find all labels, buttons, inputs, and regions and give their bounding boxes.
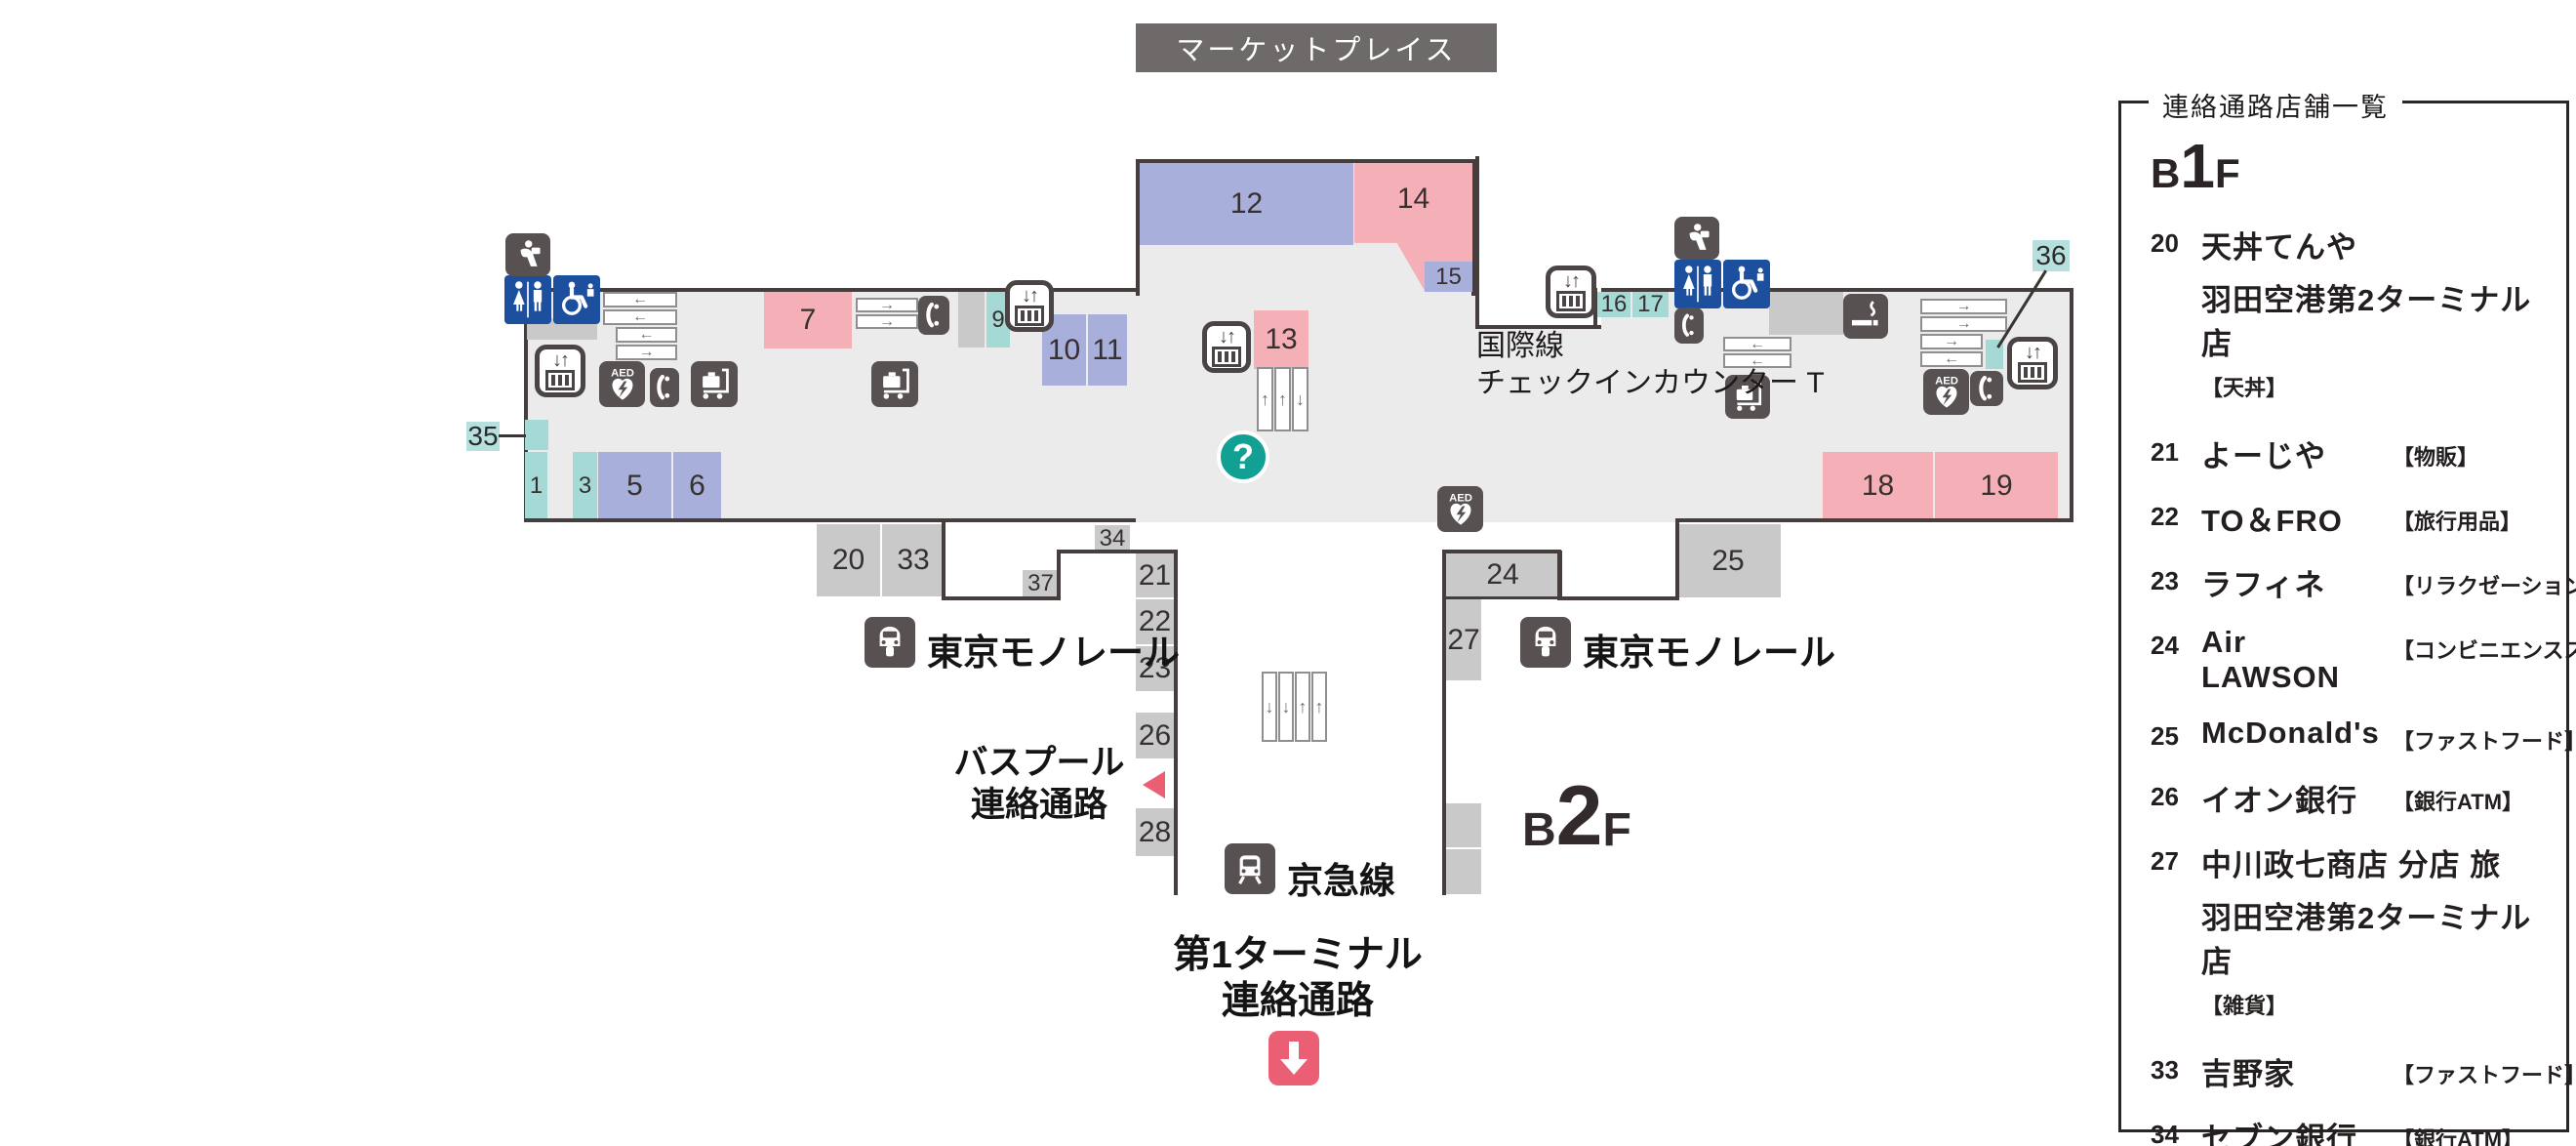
map-box-16: 16	[1597, 292, 1630, 317]
store-list-title: 連絡通路店舗一覧	[2149, 86, 2402, 124]
phone-icon	[918, 296, 949, 335]
store-list-item-26: 26イオン銀行【銀行ATM】	[2151, 776, 2541, 820]
monorail-icon	[1520, 617, 1571, 668]
map-box-11: 11	[1088, 314, 1127, 386]
monorail-icon	[865, 617, 915, 668]
map-box-3: 3	[573, 452, 597, 520]
map-box-17: 17	[1632, 292, 1669, 317]
corridor-wall	[942, 596, 1061, 600]
wall-segment	[524, 518, 1136, 522]
store-name: TO＆FRO	[2201, 496, 2383, 540]
map-box-27: 27	[1446, 599, 1481, 680]
store-list-item-23: 23ラフィネ【リラクゼーション】	[2151, 560, 2541, 604]
corridor-wall	[1442, 550, 1446, 895]
store-name: 中川政七商店 分店 旅	[2201, 840, 2541, 884]
monorail-label-left: 東京モノレール	[927, 623, 1180, 675]
escalator-arrow-icon: ←	[616, 327, 677, 343]
store-category: 【コンビニエンスストア】	[2393, 625, 2576, 695]
store-name-line2: 羽田空港第2ターミナル店	[2201, 893, 2541, 981]
map-box-28: 28	[1136, 808, 1174, 856]
map-box-19: 19	[1935, 452, 2058, 520]
phone-icon	[1970, 371, 2003, 406]
wall-segment	[1675, 518, 2073, 522]
corridor-wall	[1174, 550, 1178, 895]
store-name: セブン銀行	[2201, 1114, 2383, 1146]
smoking-room-icon	[1843, 294, 1888, 339]
escalator-arrow-icon: →	[616, 345, 677, 360]
map-box-15: 15	[1425, 262, 1472, 292]
shop-tag-35: 35	[466, 422, 500, 451]
store-category: 【ファストフード】	[2393, 1049, 2576, 1093]
corridor-wall	[1442, 550, 1561, 553]
wheelchair-icon	[553, 275, 600, 324]
corridor-wall	[942, 522, 946, 600]
map-box-blank	[958, 292, 985, 348]
terminal1-arrow-icon	[1268, 1031, 1319, 1085]
leader-line-35	[499, 434, 526, 437]
escalator-arrow-icon: ↓	[1262, 672, 1277, 742]
store-list-item-20: 20天丼てんや羽田空港第2ターミナル店【天丼】	[2151, 223, 2541, 402]
escalator-arrow-icon: ←	[603, 309, 677, 325]
store-name: ラフィネ	[2201, 560, 2383, 604]
store-number: 25	[2151, 716, 2201, 756]
map-box-33: 33	[882, 524, 945, 596]
map-box-blank	[525, 420, 548, 450]
store-name-line2: 羽田空港第2ターミナル店	[2201, 275, 2541, 363]
page-title: マーケットプレイス	[1136, 23, 1497, 72]
map-box-20: 20	[817, 524, 880, 596]
toilet-icon	[1674, 260, 1721, 308]
map-box-6: 6	[673, 452, 721, 520]
escalator-arrow-icon: ←	[1920, 351, 1983, 367]
map-box-21: 21	[1136, 553, 1174, 597]
aed-icon: AED	[1923, 369, 1969, 415]
map-box-5: 5	[598, 452, 671, 520]
aed-icon: AED	[1437, 486, 1483, 532]
map-box-12: 12	[1140, 163, 1353, 245]
map-box-blank	[1446, 849, 1481, 894]
baggage-cart-icon	[871, 361, 918, 407]
store-list-item-34: 34セブン銀行【銀行ATM】	[2151, 1114, 2541, 1146]
map-box-34: 34	[1095, 525, 1130, 552]
svg-text:AED: AED	[1935, 375, 1958, 387]
intl-checkin-label: 国際線 チェックインカウンター T	[1476, 328, 1825, 402]
terminal1-corridor-label: 第1ターミナル 連絡通路	[1166, 932, 1429, 1024]
shop-tag-36: 36	[2033, 240, 2070, 271]
phone-icon	[650, 368, 679, 407]
escalator-arrow-icon: →	[1920, 316, 2007, 332]
store-list-item-27: 27中川政七商店 分店 旅羽田空港第2ターミナル店【雑貨】	[2151, 840, 2541, 1020]
store-category: 【リラクゼーション】	[2393, 560, 2576, 604]
store-category: 【銀行ATM】	[2393, 1114, 2523, 1146]
map-box-24: 24	[1446, 553, 1559, 596]
baggage-cart-icon	[691, 361, 738, 407]
store-name: イオン銀行	[2201, 776, 2383, 820]
store-name: 天丼てんや	[2201, 223, 2541, 266]
store-number: 27	[2151, 840, 2201, 1020]
map-box-18: 18	[1823, 452, 1933, 520]
map-box-37: 37	[1023, 570, 1059, 596]
store-category: 【物販】	[2393, 431, 2478, 475]
keikyu-label: 京急線	[1287, 851, 1395, 904]
store-category: 【銀行ATM】	[2393, 776, 2523, 820]
aed-icon: AED	[599, 361, 645, 407]
drinking-fountain-icon	[1674, 217, 1719, 260]
store-name: Air LAWSON	[2201, 625, 2383, 695]
escalator-arrow-icon: →	[1920, 334, 1983, 349]
map-box-25: 25	[1675, 524, 1781, 597]
store-list-item-24: 24Air LAWSON【コンビニエンスストア】	[2151, 625, 2541, 695]
store-number: 21	[2151, 431, 2201, 475]
floor-label-b2f: B2F	[1522, 761, 1717, 854]
escalator-arrow-icon: ↑	[1257, 367, 1273, 431]
escalator-arrow-icon: ↓	[1278, 672, 1294, 742]
store-name: McDonald's	[2201, 716, 2383, 756]
elevator-icon: ↓↑	[1005, 280, 1054, 332]
buspool-label: バスプール 連絡通路	[942, 742, 1137, 826]
elevator-icon: ↓↑	[1546, 266, 1596, 318]
elevator-icon: ↓↑	[1202, 321, 1251, 373]
svg-text:AED: AED	[611, 367, 634, 379]
store-number: 34	[2151, 1114, 2201, 1146]
map-box-blank	[1446, 803, 1481, 847]
corridor-wall	[1057, 550, 1176, 553]
svg-text:AED: AED	[1449, 492, 1472, 504]
store-name: よーじや	[2201, 431, 2383, 475]
corridor-wall	[1675, 522, 1679, 600]
escalator-arrow-icon: →	[856, 314, 918, 329]
map-box-26: 26	[1136, 713, 1174, 758]
wheelchair-icon	[1723, 260, 1770, 308]
corridor-wall	[1557, 550, 1561, 600]
information-icon: ?	[1217, 430, 1269, 483]
store-list-item-33: 33吉野家【ファストフード】	[2151, 1049, 2541, 1093]
store-list-item-22: 22TO＆FRO【旅行用品】	[2151, 496, 2541, 540]
escalator-arrow-icon: ↓	[1292, 367, 1308, 431]
store-category: 【雑貨】	[2201, 989, 2541, 1020]
store-number: 22	[2151, 496, 2201, 540]
elevator-icon: ↓↑	[535, 345, 585, 397]
corridor-wall	[1557, 596, 1678, 600]
store-list-panel: 連絡通路店舗一覧 B1F 20天丼てんや羽田空港第2ターミナル店【天丼】21よー…	[2118, 101, 2569, 1132]
floor-heading-b1f: B1F	[2151, 139, 2541, 197]
store-category: 【天丼】	[2201, 371, 2541, 402]
escalator-arrow-icon: ↑	[1311, 672, 1327, 742]
store-number: 33	[2151, 1049, 2201, 1093]
map-box-7: 7	[764, 292, 852, 348]
floor-map-page: マーケットプレイス 712141513181910115613916172033…	[0, 0, 2576, 1146]
store-number: 26	[2151, 776, 2201, 820]
map-box-1: 1	[525, 452, 547, 520]
monorail-label-right: 東京モノレール	[1583, 623, 1835, 675]
store-number: 24	[2151, 625, 2201, 695]
escalator-arrow-icon: ←	[603, 292, 677, 307]
store-list-item-21: 21よーじや【物販】	[2151, 431, 2541, 475]
buspool-arrow-icon	[1143, 771, 1165, 798]
drinking-fountain-icon	[505, 233, 550, 276]
escalator-arrow-icon: ↑	[1274, 367, 1291, 431]
store-category: 【旅行用品】	[2393, 496, 2521, 540]
store-list-item-25: 25McDonald's【ファストフード】	[2151, 716, 2541, 756]
map-box-13: 13	[1254, 310, 1308, 369]
store-number: 23	[2151, 560, 2201, 604]
store-name: 吉野家	[2201, 1049, 2383, 1093]
escalator-arrow-icon: →	[1920, 299, 2007, 314]
corridor-wall	[1057, 553, 1061, 600]
escalator-arrow-icon: ↑	[1295, 672, 1310, 742]
store-number: 20	[2151, 223, 2201, 402]
store-category: 【ファストフード】	[2393, 716, 2576, 756]
toilet-icon	[504, 275, 551, 324]
elevator-icon: ↓↑	[2007, 337, 2058, 389]
keikyu-line-icon	[1225, 843, 1275, 894]
escalator-arrow-icon: →	[856, 298, 918, 312]
